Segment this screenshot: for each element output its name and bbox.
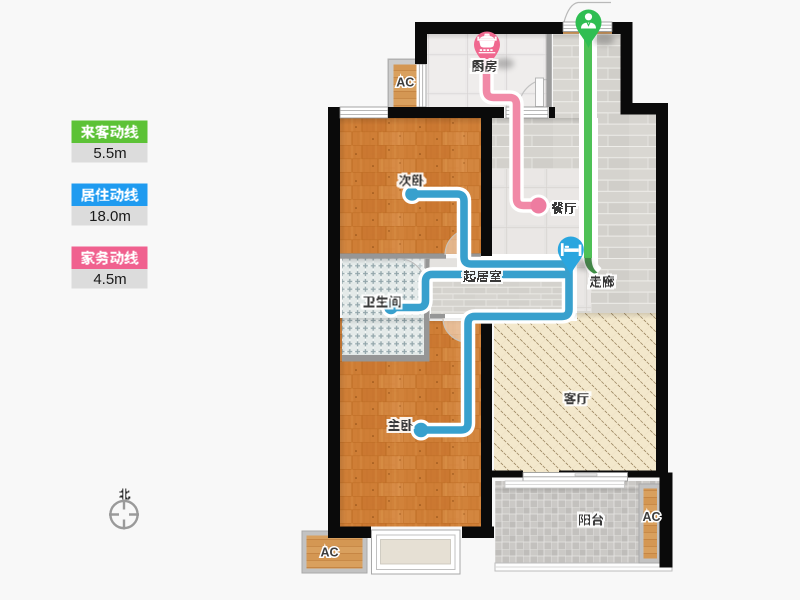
svg-text:AC: AC <box>320 546 338 560</box>
svg-text:AC: AC <box>396 76 414 90</box>
svg-text:5.5m: 5.5m <box>93 145 126 162</box>
svg-text:18.0m: 18.0m <box>89 208 131 225</box>
svg-text:4.5m: 4.5m <box>93 271 126 288</box>
svg-text:AC: AC <box>642 510 660 524</box>
